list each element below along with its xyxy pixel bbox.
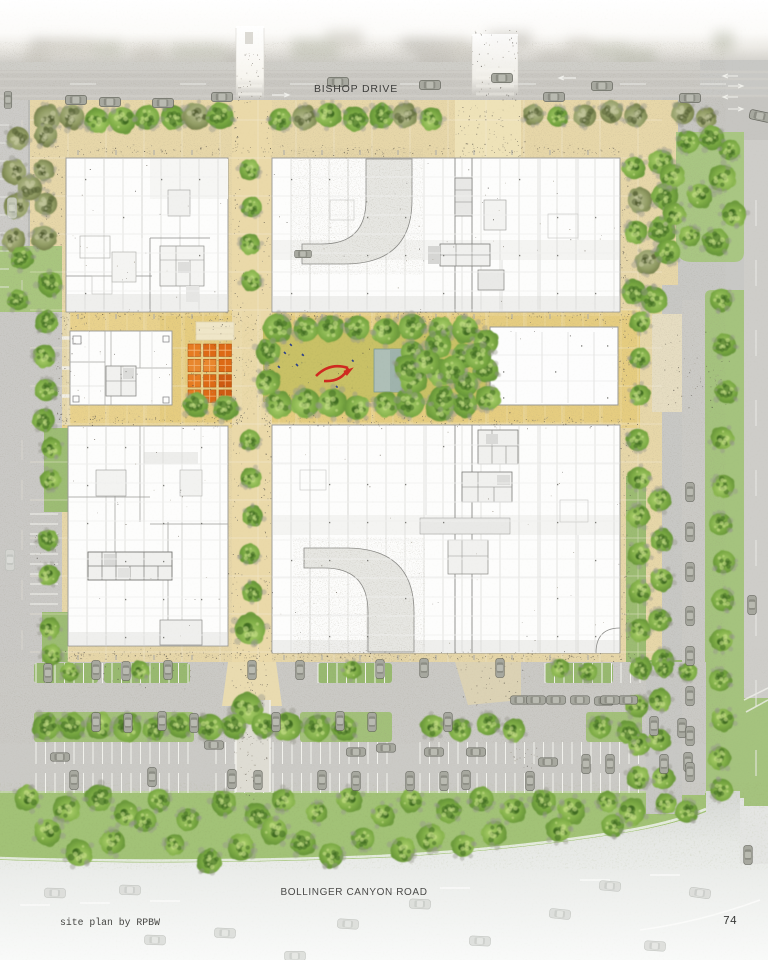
svg-text:74: 74 xyxy=(723,915,737,928)
svg-text:site plan by RPBW: site plan by RPBW xyxy=(60,917,160,928)
svg-text:BOLLINGER CANYON ROAD: BOLLINGER CANYON ROAD xyxy=(280,887,427,898)
svg-text:BISHOP DRIVE: BISHOP DRIVE xyxy=(314,83,398,95)
